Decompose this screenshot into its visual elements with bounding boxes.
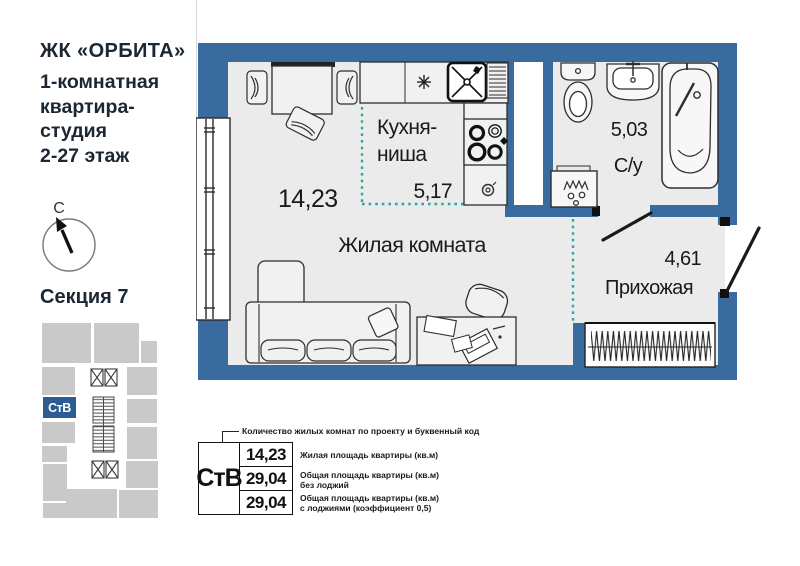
kitchen-area-value: 5,17 [414, 180, 452, 203]
living-room-label: Жилая комната [338, 233, 486, 257]
legend-callout-text: Количество жилых комнат по проекту и бук… [242, 426, 479, 436]
entrance-door [727, 228, 759, 291]
kitchen-label-line2: ниша [377, 143, 427, 166]
legend: Количество жилых комнат по проекту и бук… [196, 425, 496, 520]
sink-icon [448, 63, 486, 101]
washbasin-icon [607, 61, 659, 100]
subtitle-line-3: студия [40, 119, 159, 144]
floorplan-page: ЖК «ОРБИТА» 1-комнатная квартира- студия… [0, 0, 800, 566]
subtitle-line-4: 2-27 этаж [40, 144, 159, 169]
legend-desc-living: Жилая площадь квартиры (кв.м) [300, 450, 438, 460]
legend-value-total: 29,04 [240, 466, 292, 490]
wardrobe [585, 323, 715, 367]
section-minimap: СтВ [34, 318, 164, 524]
apartment-floorplan: 14,23 Кухня- ниша 5,17 Жилая комната 5,0… [196, 30, 766, 390]
minimap-unit-code: СтВ [48, 401, 71, 415]
bath-area-value: 5,03 [611, 119, 648, 141]
subtitle-line-1: 1-комнатная [40, 70, 159, 95]
hall-label: Прихожая [605, 277, 693, 299]
legend-table: СтВ 14,23 29,04 29,04 [198, 442, 293, 515]
fridge-snowflake-icon [417, 75, 431, 89]
legend-desc-total-loggia: Общая площадь квартиры (кв.м) с лоджиями… [300, 493, 439, 513]
bath-label: С/у [614, 155, 643, 177]
compass-north-label: С [53, 200, 65, 217]
legend-values: 14,23 29,04 29,04 [240, 443, 292, 514]
compass: С [30, 190, 114, 282]
chair-right [337, 71, 357, 104]
kitchen-label-line1: Кухня- [377, 116, 437, 139]
legend-unit-code: СтВ [199, 443, 240, 514]
apartment-subtitle: 1-комнатная квартира- студия 2-27 этаж [40, 70, 159, 168]
compass-arrow-shaft [62, 230, 72, 253]
minimap-stairs [93, 397, 114, 452]
subtitle-line-2: квартира- [40, 95, 159, 120]
bathtub-icon [662, 63, 718, 188]
complex-name: ЖК «ОРБИТА» [40, 40, 186, 63]
chair-left [247, 71, 267, 104]
section-title: Секция 7 [40, 286, 129, 309]
window [196, 118, 230, 320]
living-area-value: 14,23 [278, 185, 338, 213]
hall-area-value: 4,61 [664, 248, 701, 270]
washing-machine-icon [551, 166, 597, 207]
vent-shaft [514, 62, 543, 205]
toilet-icon [561, 63, 595, 122]
legend-value-living: 14,23 [240, 443, 292, 466]
stove-icon [464, 119, 508, 165]
legend-desc-total: Общая площадь квартиры (кв.м) без лоджий [300, 470, 439, 490]
legend-value-total-loggia: 29,04 [240, 490, 292, 514]
